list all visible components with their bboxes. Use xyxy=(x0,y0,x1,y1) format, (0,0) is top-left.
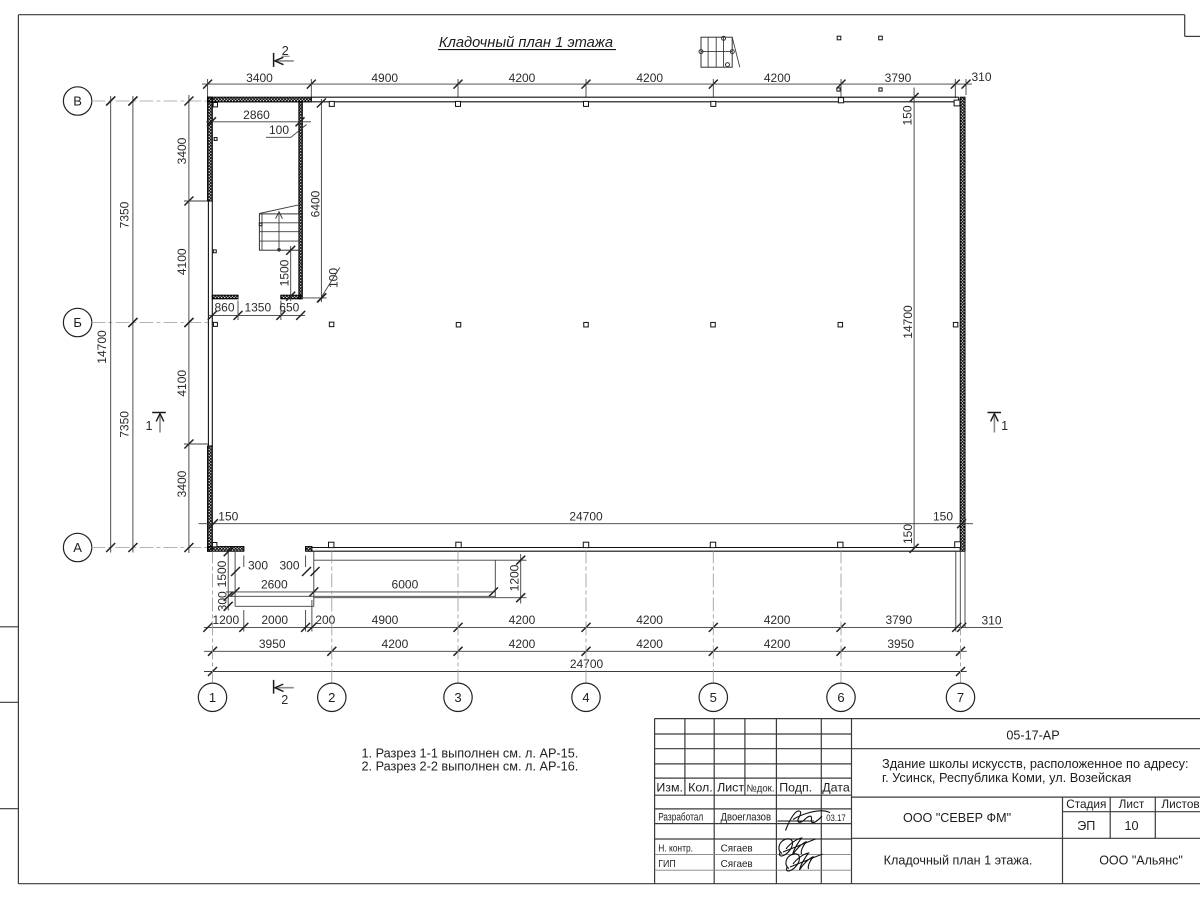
svg-text:4900: 4900 xyxy=(371,71,398,85)
svg-text:2600: 2600 xyxy=(261,577,288,591)
svg-text:В: В xyxy=(73,94,82,109)
svg-text:4200: 4200 xyxy=(636,637,663,651)
svg-text:03.17: 03.17 xyxy=(826,813,846,824)
svg-text:300: 300 xyxy=(216,591,230,611)
svg-text:Здание школы искусств, располо: Здание школы искусств, расположенное по … xyxy=(882,756,1189,771)
svg-text:7350: 7350 xyxy=(117,411,131,438)
svg-text:4200: 4200 xyxy=(636,71,663,85)
svg-text:4200: 4200 xyxy=(382,637,409,651)
svg-text:Сягаев: Сягаев xyxy=(721,859,754,870)
svg-text:4200: 4200 xyxy=(509,637,536,651)
svg-text:1200: 1200 xyxy=(212,613,239,627)
svg-text:1: 1 xyxy=(1001,419,1008,433)
svg-text:Сягаев: Сягаев xyxy=(721,844,754,855)
svg-text:14700: 14700 xyxy=(901,305,915,339)
svg-text:24700: 24700 xyxy=(569,510,603,524)
svg-text:3790: 3790 xyxy=(885,613,912,627)
svg-text:1350: 1350 xyxy=(244,300,271,314)
svg-text:150: 150 xyxy=(218,510,238,524)
svg-text:№док.: №док. xyxy=(747,784,775,795)
svg-text:2000: 2000 xyxy=(261,613,288,627)
svg-text:3400: 3400 xyxy=(246,71,273,85)
svg-text:Подп.: Подп. xyxy=(779,781,812,795)
svg-text:4: 4 xyxy=(582,690,589,705)
svg-text:Кол.: Кол. xyxy=(688,781,713,795)
svg-text:2860: 2860 xyxy=(243,108,270,122)
svg-text:150: 150 xyxy=(900,105,914,125)
svg-text:4200: 4200 xyxy=(636,613,663,627)
svg-text:Двоеглазов: Двоеглазов xyxy=(721,812,772,824)
svg-text:300: 300 xyxy=(279,558,299,572)
svg-text:4100: 4100 xyxy=(175,370,189,397)
svg-text:4900: 4900 xyxy=(372,613,399,627)
svg-text:24700: 24700 xyxy=(570,657,604,671)
svg-text:1: 1 xyxy=(145,419,152,433)
svg-text:4200: 4200 xyxy=(509,613,536,627)
svg-text:1: 1 xyxy=(209,690,216,705)
svg-text:Кладочный план 1 этажа: Кладочный план 1 этажа xyxy=(439,35,613,51)
svg-text:г. Усинск, Республика Коми, ул: г. Усинск, Республика Коми, ул. Возейска… xyxy=(882,770,1131,785)
svg-text:650: 650 xyxy=(279,300,299,314)
svg-text:Разработал: Разработал xyxy=(658,812,703,824)
svg-text:310: 310 xyxy=(971,70,991,84)
svg-text:ООО "Альянс": ООО "Альянс" xyxy=(1099,853,1183,867)
svg-text:1500: 1500 xyxy=(278,259,292,286)
svg-text:5: 5 xyxy=(710,690,717,705)
svg-text:6000: 6000 xyxy=(392,577,419,591)
svg-text:2. Разрез 2-2 выполнен см. л.: 2. Разрез 2-2 выполнен см. л. АР-16. xyxy=(362,760,579,774)
svg-text:А: А xyxy=(73,540,82,555)
svg-text:ГИП: ГИП xyxy=(658,859,676,870)
svg-text:Изм.: Изм. xyxy=(656,781,683,795)
svg-text:1. Разрез 1-1 выполнен см. л.: 1. Разрез 1-1 выполнен см. л. АР-15. xyxy=(362,747,579,761)
svg-text:1200: 1200 xyxy=(508,564,522,591)
svg-text:2: 2 xyxy=(281,693,288,707)
svg-text:Дата: Дата xyxy=(822,781,850,795)
svg-text:Н. контр.: Н. контр. xyxy=(658,844,693,855)
svg-text:310: 310 xyxy=(981,613,1001,627)
svg-text:4200: 4200 xyxy=(764,637,791,651)
svg-text:860: 860 xyxy=(214,300,234,314)
svg-text:3950: 3950 xyxy=(887,637,914,651)
svg-text:3950: 3950 xyxy=(259,637,286,651)
svg-text:3790: 3790 xyxy=(885,71,912,85)
svg-text:14700: 14700 xyxy=(95,330,109,364)
svg-text:200: 200 xyxy=(315,613,335,627)
svg-text:100: 100 xyxy=(269,123,289,137)
svg-text:ООО "СЕВЕР ФМ": ООО "СЕВЕР ФМ" xyxy=(903,811,1011,825)
svg-text:05-17-АР: 05-17-АР xyxy=(1006,728,1059,742)
svg-text:3400: 3400 xyxy=(175,470,189,497)
svg-text:3: 3 xyxy=(454,690,461,705)
svg-text:6: 6 xyxy=(837,690,844,705)
svg-text:2: 2 xyxy=(328,690,335,705)
svg-text:4200: 4200 xyxy=(764,613,791,627)
svg-text:1500: 1500 xyxy=(215,560,229,587)
svg-text:150: 150 xyxy=(933,510,953,524)
svg-text:10: 10 xyxy=(1124,819,1138,833)
svg-text:150: 150 xyxy=(901,524,915,544)
svg-text:7350: 7350 xyxy=(117,201,131,228)
svg-text:7: 7 xyxy=(957,690,964,705)
svg-text:Стадия: Стадия xyxy=(1066,797,1106,811)
svg-text:4200: 4200 xyxy=(509,71,536,85)
svg-text:Лист: Лист xyxy=(1119,797,1145,811)
svg-text:4100: 4100 xyxy=(175,248,189,275)
svg-text:4200: 4200 xyxy=(764,71,791,85)
svg-text:6400: 6400 xyxy=(308,190,322,217)
svg-text:Кладочный план 1 этажа.: Кладочный план 1 этажа. xyxy=(884,853,1033,867)
svg-text:300: 300 xyxy=(248,558,268,572)
svg-text:Б: Б xyxy=(73,315,82,330)
svg-text:Лист: Лист xyxy=(717,781,744,795)
svg-text:ЭП: ЭП xyxy=(1077,819,1095,833)
svg-text:Листов: Листов xyxy=(1161,797,1199,811)
svg-text:3400: 3400 xyxy=(175,137,189,164)
